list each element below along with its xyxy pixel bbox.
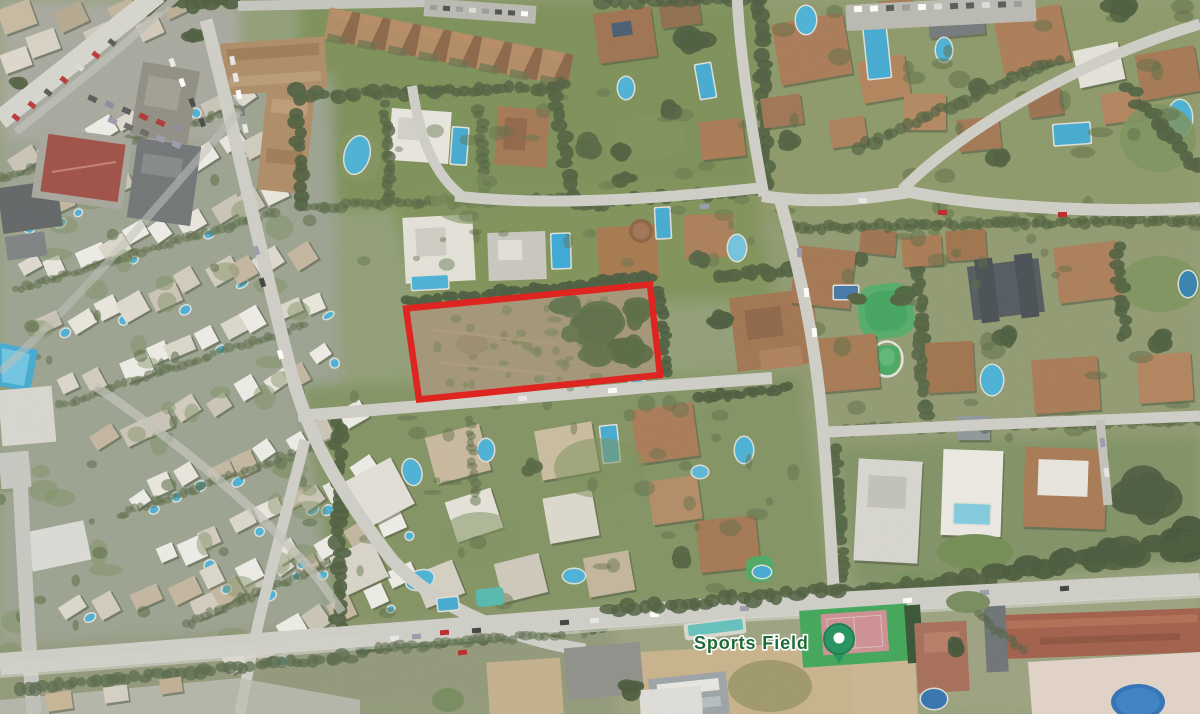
svg-text:Sports Field: Sports Field — [694, 633, 809, 653]
